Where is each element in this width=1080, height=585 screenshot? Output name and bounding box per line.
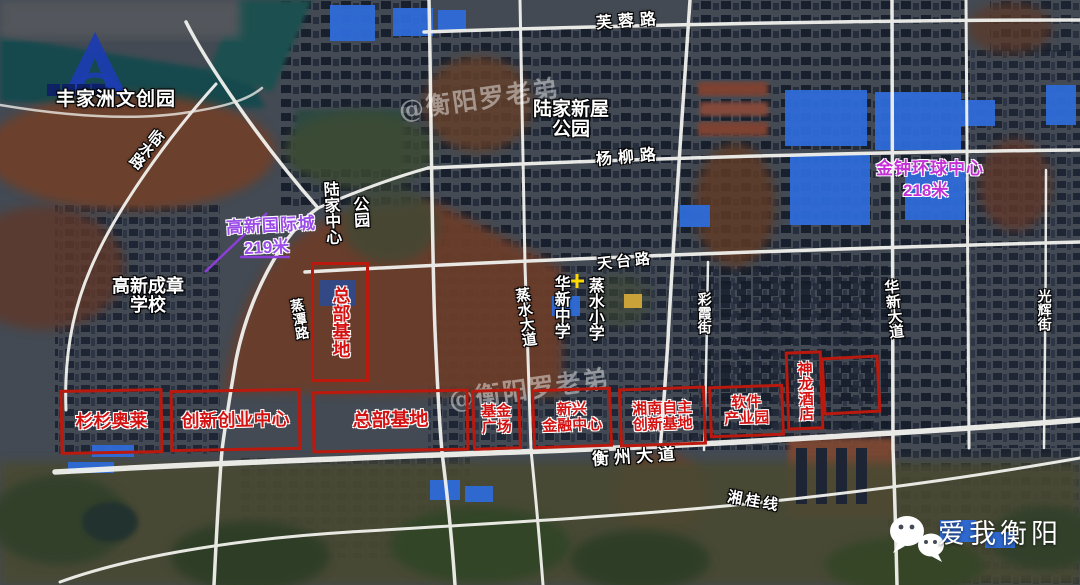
label-lujia-center-park-col2: 公园 [349, 196, 367, 229]
zone-box-shanshan-outlets: 杉杉奥莱 [59, 388, 163, 455]
label-road-guanghui: 光辉街 [1037, 289, 1052, 331]
label-lujia-xinwu-park: 陆家新屋 公园 [533, 100, 609, 140]
zone-box-xiangnan-innovation: 湘南自主 创新基地 [618, 385, 707, 447]
label-jinzhong-global-center: 金钟环球中心 [876, 160, 984, 178]
satellite-map: @衡阳罗老弟 @衡阳罗老弟 丰家洲文创园 临水路 芙蓉路 陆家新屋 公园 杨柳路… [0, 0, 1080, 585]
zone-box-shenlong-hotel-site [821, 355, 882, 416]
label-gaoxin-international-city-height: 219米 [244, 238, 290, 258]
label-chengzhang-school: 高新成章 学校 [112, 277, 184, 315]
zone-box-hq-base-vertical: 总部基地 [311, 262, 369, 382]
label-lujia-center-park-col1: 陆家中心 [319, 181, 339, 246]
zone-box-fund-plaza: 基金 广场 [471, 388, 522, 451]
zone-box-hq-base: 总部基地 [311, 389, 469, 454]
zone-box-software-park: 软件 产业园 [708, 384, 785, 439]
wechat-account-name: 爱我衡阳 [938, 520, 1062, 548]
label-road-caixia: 彩霞街 [697, 292, 712, 334]
label-zhengshui-primary-school: 蒸水小学 [585, 277, 602, 341]
zone-box-emerging-finance: 新兴 金融中心 [531, 387, 613, 450]
zone-box-innovation-center: 创新创业中心 [169, 388, 301, 452]
label-fengjiazhou-park: 丰家洲文创园 [56, 90, 176, 110]
zone-box-shenlong-hotel: 神龙酒店 [785, 350, 825, 430]
label-huaxin-middle-school: 华新中学 [551, 275, 568, 339]
label-jinzhong-global-center-height: 218米 [903, 182, 948, 200]
